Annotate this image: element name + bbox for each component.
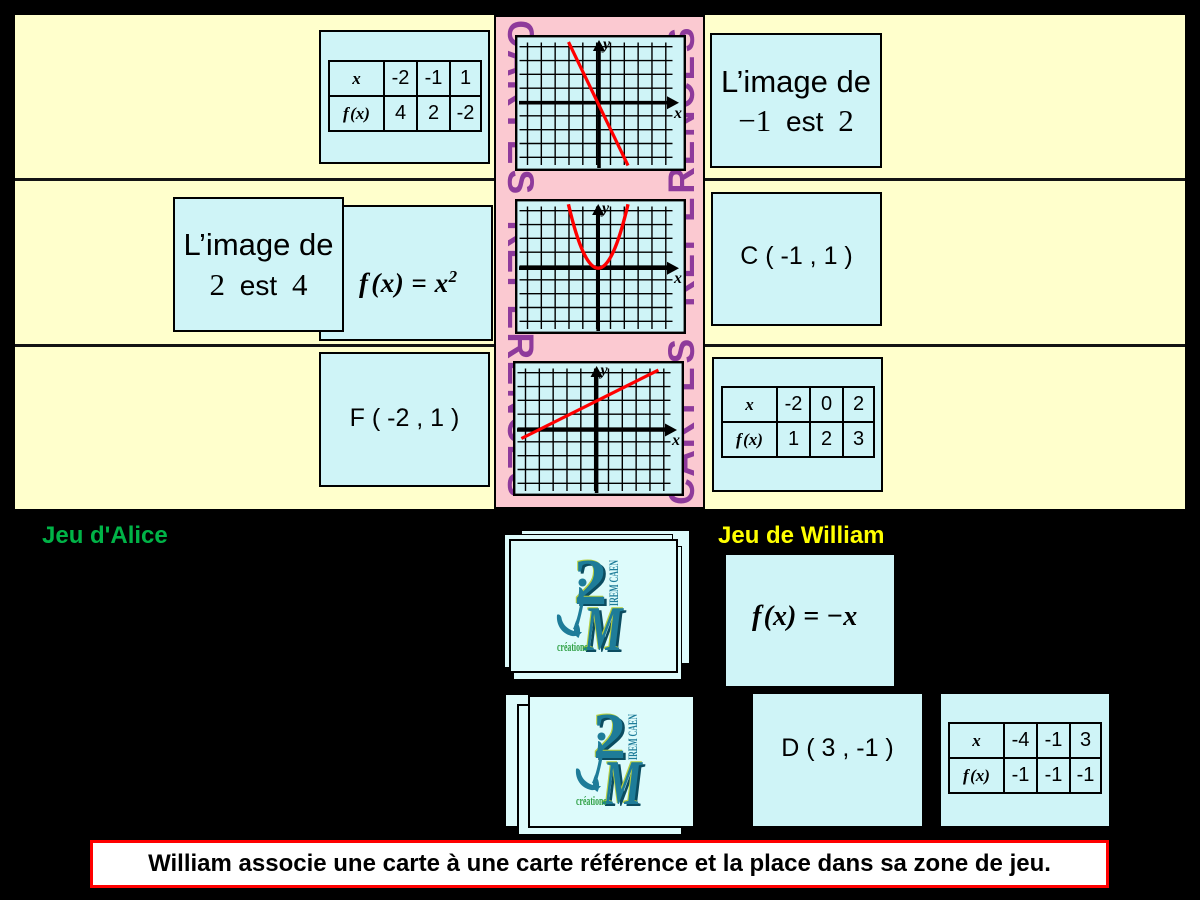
svg-text:y: y [601, 36, 611, 53]
svg-text:y: y [599, 362, 609, 379]
svg-text:y: y [600, 200, 610, 217]
svg-text:x: x [671, 432, 680, 449]
svg-text:x: x [673, 105, 682, 122]
svg-text:x: x [673, 270, 682, 287]
